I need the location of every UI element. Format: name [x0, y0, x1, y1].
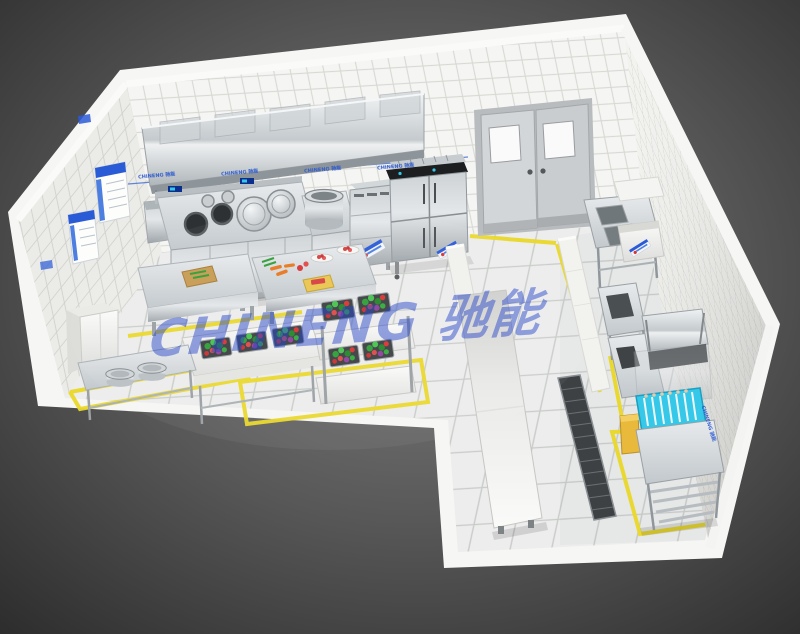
door-handle-right	[540, 168, 545, 173]
door-handle-left	[527, 169, 532, 174]
poster-small	[68, 210, 99, 264]
poster-large	[95, 162, 130, 223]
kitchen-3d-render: CHINENG 驰能 CHINENG 驰能 CHINENG 驰能 CHINENG…	[0, 0, 800, 634]
render-canvas	[0, 0, 800, 634]
double-swing-doors	[474, 98, 596, 236]
storage-cabinet-right	[618, 221, 664, 262]
door-window-left	[489, 125, 521, 163]
door-window-right	[543, 121, 575, 159]
